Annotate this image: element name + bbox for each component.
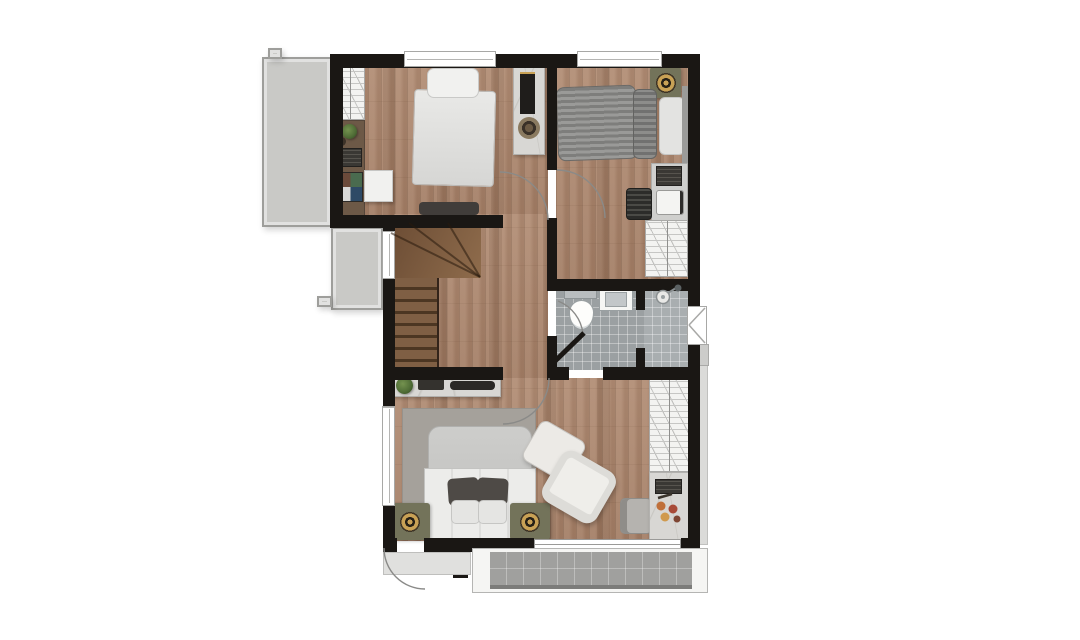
sink-basin — [605, 292, 627, 307]
vanity-decor-icon — [655, 479, 682, 494]
wall-left-upper — [330, 54, 343, 228]
balcony-nub-icon — [268, 48, 282, 59]
window-bath-east — [687, 306, 707, 345]
plant-icon — [342, 124, 357, 139]
ledge-nub-icon — [317, 296, 332, 307]
wall-shower-divider-top — [636, 286, 645, 310]
lamp-icon — [399, 511, 421, 533]
lamp-icon — [519, 511, 541, 533]
floor-shower — [644, 288, 689, 370]
tv-icon — [520, 72, 535, 114]
wall-divider-12-a — [547, 54, 557, 170]
wall-bedroom1-south — [330, 215, 503, 228]
bed-single-1-pillow — [427, 68, 479, 98]
bed-single-2-duvet — [556, 85, 639, 162]
chair-bedroom-2 — [626, 188, 652, 220]
window-master-west — [382, 406, 395, 506]
laptop-icon — [656, 190, 684, 215]
balcony-upper-left — [262, 57, 332, 227]
stairs-straight-run — [389, 278, 439, 374]
landing-bottom-left — [383, 552, 471, 575]
console-soundbar-icon — [450, 381, 495, 390]
stairs-winder — [389, 222, 481, 278]
foot-bench-bedroom-1 — [419, 202, 479, 215]
window-top-bedroom-2 — [577, 51, 662, 67]
roof-ledge-left — [331, 227, 383, 310]
decor-plate-icon — [518, 117, 540, 139]
bed-single-1-duvet — [412, 89, 496, 187]
window-top-bedroom-1 — [404, 51, 496, 67]
nightstand-master-right — [510, 503, 550, 540]
wardrobe-master — [649, 372, 689, 472]
wall-east-b — [688, 344, 700, 550]
wall-east-a — [688, 54, 700, 306]
speaker-icon — [655, 72, 677, 94]
wall-master-north — [383, 367, 503, 380]
pillow-white-left — [451, 500, 480, 524]
balcony-bottom-tile — [490, 552, 692, 589]
wardrobe-bedroom-2 — [645, 220, 688, 277]
wall-bath-north — [547, 279, 700, 291]
pillow-white-right — [478, 500, 507, 524]
wall-bottom-a — [383, 538, 397, 552]
side-ledge-right — [699, 347, 708, 545]
nightstand-master-left — [390, 503, 430, 540]
books-desk-2 — [656, 166, 682, 186]
bed-single-2-fold — [633, 89, 657, 159]
floor-plan — [0, 0, 1080, 640]
wall-bath-south-a — [547, 367, 569, 380]
vanity-chair — [620, 498, 652, 534]
wall-bath-south-b — [603, 367, 700, 380]
nightstand-bedroom-1 — [364, 170, 393, 202]
window-stair-west — [382, 231, 395, 279]
wall-divider-12-b — [547, 218, 557, 281]
